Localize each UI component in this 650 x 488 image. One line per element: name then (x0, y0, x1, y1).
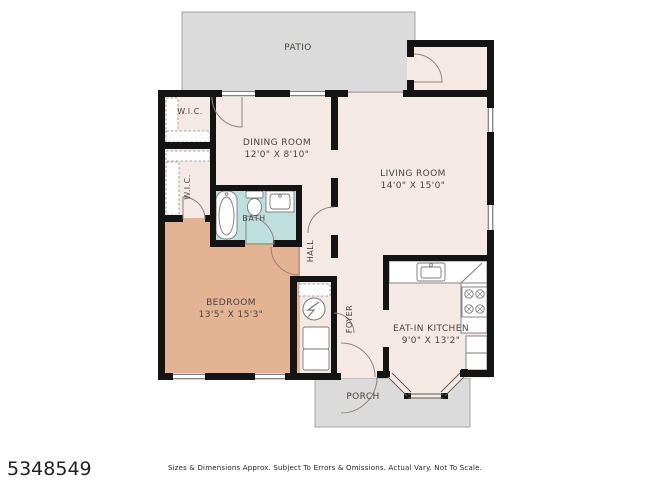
dining-room-dims: 12'0" X 8'10" (243, 149, 311, 161)
window (290, 90, 325, 97)
wic-upper-label: W.I.C. (177, 106, 203, 118)
window (222, 90, 255, 97)
mls-number: 5348549 (7, 458, 92, 480)
floor-plan-drawing (0, 0, 650, 488)
kitchen-sink-icon (417, 263, 445, 281)
wic-lower-label: W.I.C. (182, 174, 194, 200)
porch-label: PORCH (346, 391, 379, 403)
bathtub-icon (216, 191, 237, 239)
foyer-label: FOYER (344, 305, 356, 333)
bedroom-name: BEDROOM (199, 297, 264, 309)
electrical-panel-icon (303, 298, 325, 320)
patio-label: PATIO (284, 42, 312, 54)
dining-room-name: DINING ROOM (243, 137, 311, 149)
bath-label: BATH (242, 213, 265, 225)
washer-dryer-icon (303, 327, 329, 370)
kitchen-label: EAT-IN KITCHEN 9'0" X 13'2" (393, 323, 469, 347)
floor-plan-canvas: PATIO W.I.C. W.I.C. DINING ROOM 12'0" X … (0, 0, 650, 488)
dining-room-label: DINING ROOM 12'0" X 8'10" (243, 137, 311, 161)
window (173, 373, 205, 380)
window (255, 373, 285, 380)
living-room-label: LIVING ROOM 14'0" X 15'0" (380, 168, 446, 192)
stove-icon (462, 287, 487, 317)
kitchen-name: EAT-IN KITCHEN (393, 323, 469, 335)
living-room-dims: 14'0" X 15'0" (380, 180, 446, 192)
window (487, 205, 494, 230)
bedroom-label: BEDROOM 13'5" X 15'3" (199, 297, 264, 321)
window (487, 108, 494, 132)
living-room-name: LIVING ROOM (380, 168, 446, 180)
toilet-icon (246, 191, 263, 216)
kitchen-dims: 9'0" X 13'2" (393, 335, 469, 347)
bedroom-dims: 13'5" X 15'3" (199, 309, 264, 321)
bathroom-sink-icon (266, 191, 294, 212)
disclaimer-text: Sizes & Dimensions Approx. Subject To Er… (0, 464, 650, 472)
hall-label: HALL (305, 240, 317, 262)
